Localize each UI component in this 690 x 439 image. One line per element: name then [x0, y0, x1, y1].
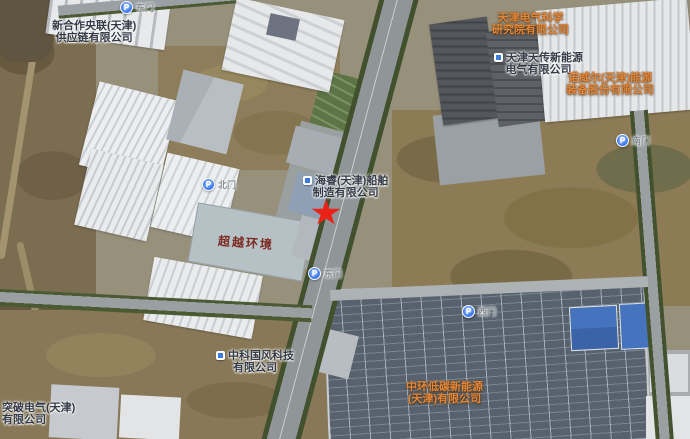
building-icon [303, 176, 312, 185]
company-label-zhongke[interactable]: 中科国风科技 有限公司 [216, 350, 294, 374]
company-label-line1: 突破电气(天津) [2, 402, 75, 414]
company-label-line1: 新合作央联(天津) [52, 20, 136, 32]
company-label-line1: 中环低碳新能源 [406, 381, 483, 393]
building-blue-roof [569, 305, 619, 351]
parking-icon: P [308, 267, 321, 280]
gate-marker-south[interactable]: P 南门 [616, 134, 650, 147]
satellite-map-canvas[interactable]: 超越环境 新合作央联(天津) 供应链有限公司 天津电气科学 研究院有限公司 天津… [0, 0, 690, 439]
company-label-line2: 供应链有限公司 [52, 32, 136, 44]
gate-marker-east[interactable]: P 东门 [308, 267, 342, 280]
building-icon [494, 53, 503, 62]
parking-icon: P [616, 134, 629, 147]
gate-label: 北门 [218, 178, 236, 191]
company-label-line1: 天津电气科学 [492, 12, 569, 24]
company-label-line1: 中科国风科技 [228, 350, 294, 362]
company-label-line2: 有限公司 [2, 414, 75, 426]
parking-icon: P [202, 178, 215, 191]
company-label-hairui-shipbuilding[interactable]: 海睿(天津)船舶 制造有限公司 [303, 175, 388, 199]
gate-marker-east-top[interactable]: P 东门 [120, 1, 154, 14]
company-label-nuoweier[interactable]: 诺威尔(天津)能源 装备股份有限公司 [566, 72, 654, 96]
gate-label: 南门 [632, 134, 650, 147]
gate-marker-west[interactable]: P 西门 [462, 305, 496, 318]
company-label-xinhezuo[interactable]: 新合作央联(天津) 供应链有限公司 [52, 20, 136, 44]
gate-label: 西门 [478, 305, 496, 318]
building-white [119, 394, 181, 439]
parking-icon: P [462, 305, 475, 318]
company-label-line2: 制造有限公司 [303, 187, 388, 199]
building-solar-roof-factory [323, 278, 650, 439]
company-label-line2: 研究院有限公司 [492, 24, 569, 36]
company-label-tupo[interactable]: 突破电气(天津) 有限公司 [2, 402, 75, 426]
company-label-line2: (天津)有限公司 [406, 393, 483, 405]
company-label-line2: 有限公司 [216, 362, 294, 374]
company-label-zhonghuan[interactable]: 中环低碳新能源 (天津)有限公司 [406, 381, 483, 405]
company-label-dianqi-research[interactable]: 天津电气科学 研究院有限公司 [492, 12, 569, 36]
gate-label: 东门 [324, 267, 342, 280]
company-label-line1: 海睿(天津)船舶 [315, 175, 388, 187]
gate-marker-north[interactable]: P 北门 [202, 178, 236, 191]
company-label-line2: 装备股份有限公司 [566, 84, 654, 96]
building-icon [216, 351, 225, 360]
company-label-line1: 诺威尔(天津)能源 [566, 72, 654, 84]
parking-icon: P [120, 1, 133, 14]
company-label-line1: 天津天传新能源 [506, 52, 583, 64]
gate-label: 东门 [136, 1, 154, 14]
